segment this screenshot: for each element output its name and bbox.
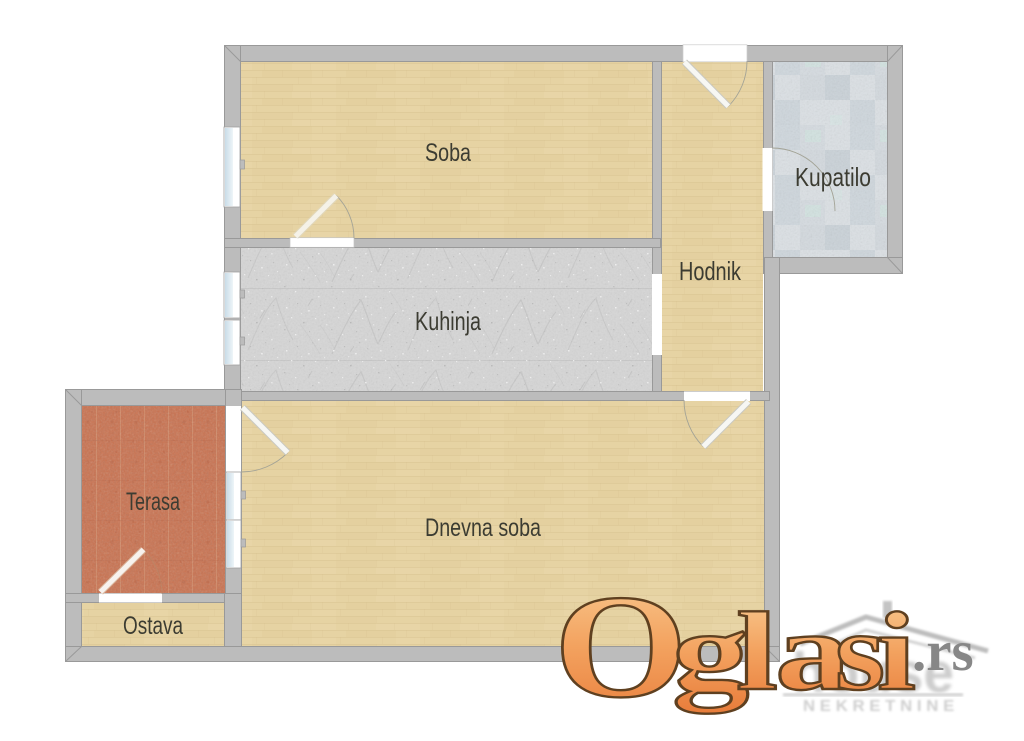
- svg-text:Dnevna soba: Dnevna soba: [425, 514, 541, 542]
- svg-text:.rs: .rs: [912, 620, 974, 683]
- svg-text:Hodnik: Hodnik: [679, 256, 742, 286]
- svg-text:Terasa: Terasa: [126, 488, 180, 516]
- svg-text:Ostava: Ostava: [123, 612, 183, 640]
- svg-text:Kuhinja: Kuhinja: [415, 306, 481, 336]
- svg-text:O: O: [554, 564, 688, 728]
- svg-text:i: i: [877, 590, 916, 714]
- svg-text:l: l: [736, 589, 778, 714]
- svg-text:Soba: Soba: [425, 139, 471, 167]
- svg-text:Kupatilo: Kupatilo: [795, 162, 871, 192]
